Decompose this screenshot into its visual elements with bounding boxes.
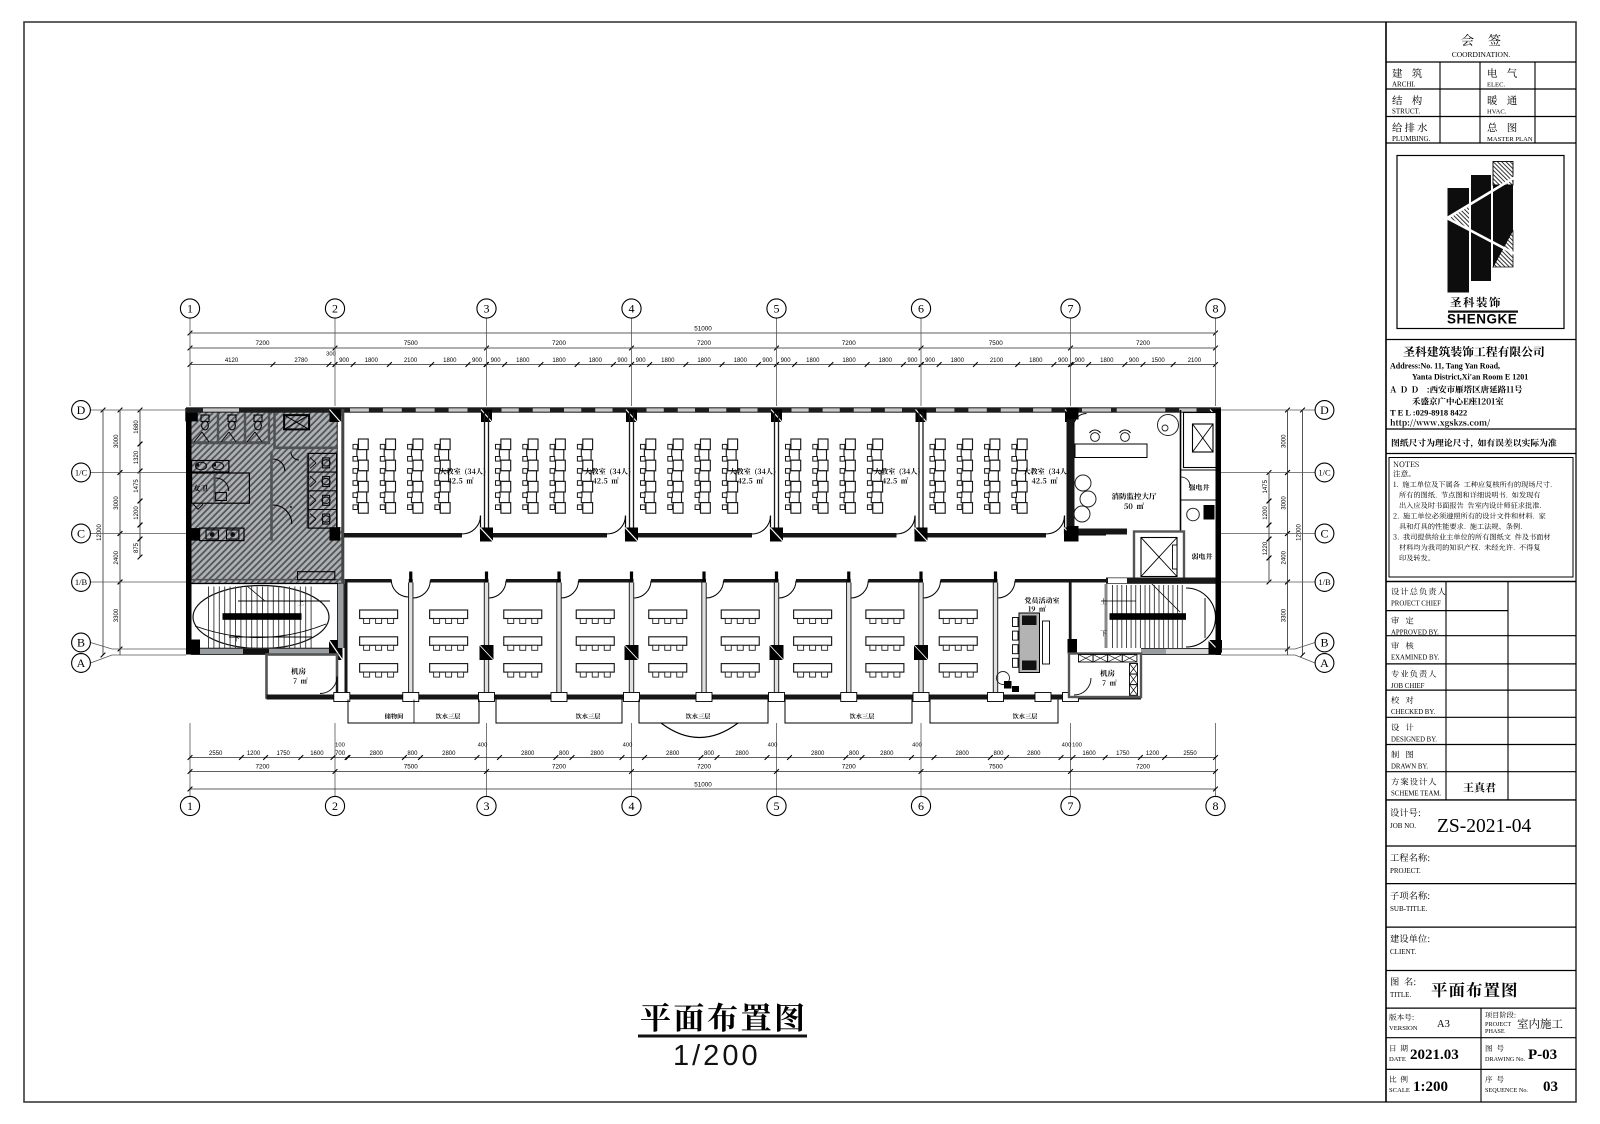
svg-text:3000: 3000 bbox=[114, 434, 120, 448]
svg-text:CHECKED BY.: CHECKED BY. bbox=[1391, 709, 1435, 716]
svg-text:100: 100 bbox=[335, 743, 345, 749]
svg-text:5: 5 bbox=[774, 302, 780, 316]
svg-text:SUB-TITLE.: SUB-TITLE. bbox=[1390, 905, 1427, 913]
svg-text:C: C bbox=[77, 527, 85, 541]
svg-text:3300: 3300 bbox=[1282, 608, 1288, 622]
svg-text:900: 900 bbox=[1075, 358, 1086, 364]
svg-text:2800: 2800 bbox=[1027, 751, 1041, 757]
svg-text:4: 4 bbox=[629, 302, 635, 316]
svg-text:7200: 7200 bbox=[697, 340, 712, 347]
svg-text:PROJECT: PROJECT bbox=[1485, 1021, 1511, 1028]
svg-text:DESIGNED BY.: DESIGNED BY. bbox=[1391, 736, 1437, 743]
svg-text:400: 400 bbox=[912, 743, 922, 749]
svg-text:APPROVED BY.: APPROVED BY. bbox=[1391, 630, 1439, 637]
svg-text:2100: 2100 bbox=[990, 358, 1004, 364]
svg-text:1475: 1475 bbox=[134, 479, 140, 493]
svg-text:300: 300 bbox=[326, 352, 336, 358]
svg-text:2800: 2800 bbox=[590, 751, 604, 757]
svg-text:TITLE.: TITLE. bbox=[1390, 991, 1411, 999]
svg-text:MASTER PLAN: MASTER PLAN bbox=[1487, 136, 1533, 143]
svg-text:1800: 1800 bbox=[842, 358, 856, 364]
svg-text:1320: 1320 bbox=[134, 450, 140, 464]
svg-text:700: 700 bbox=[335, 751, 346, 757]
svg-text:1800: 1800 bbox=[879, 358, 893, 364]
svg-text:2100: 2100 bbox=[404, 358, 418, 364]
svg-text:3000: 3000 bbox=[1282, 496, 1288, 510]
svg-text:2400: 2400 bbox=[114, 550, 120, 564]
svg-text:3300: 3300 bbox=[114, 608, 120, 622]
svg-text:2780: 2780 bbox=[294, 358, 308, 364]
svg-text:400: 400 bbox=[623, 743, 633, 749]
svg-text:B: B bbox=[1320, 636, 1328, 650]
svg-text:1: 1 bbox=[187, 302, 193, 316]
svg-text:7200: 7200 bbox=[842, 340, 857, 347]
svg-text:SHENGKE: SHENGKE bbox=[1447, 312, 1517, 327]
svg-text:1:200: 1:200 bbox=[1413, 1079, 1448, 1095]
svg-text:900: 900 bbox=[491, 358, 502, 364]
svg-text:PLUMBING.: PLUMBING. bbox=[1392, 135, 1431, 143]
svg-text:2800: 2800 bbox=[956, 751, 970, 757]
svg-text:4: 4 bbox=[629, 799, 635, 813]
svg-text:400: 400 bbox=[768, 743, 778, 749]
svg-text:CLIENT.: CLIENT. bbox=[1390, 948, 1416, 956]
svg-text:STRUCT.: STRUCT. bbox=[1392, 108, 1420, 116]
svg-text:1600: 1600 bbox=[310, 751, 324, 757]
svg-text:1/C: 1/C bbox=[1318, 468, 1331, 478]
svg-text:2800: 2800 bbox=[735, 751, 749, 757]
svg-text:1475: 1475 bbox=[1263, 479, 1269, 493]
svg-text:2800: 2800 bbox=[370, 751, 384, 757]
svg-text:1200: 1200 bbox=[134, 506, 140, 520]
svg-text:1750: 1750 bbox=[1116, 751, 1130, 757]
svg-text:3: 3 bbox=[484, 799, 490, 813]
svg-text:1600: 1600 bbox=[1082, 751, 1096, 757]
svg-text:1200: 1200 bbox=[1146, 751, 1160, 757]
svg-text:Yanta District,Xi'an Room E 12: Yanta District,Xi'an Room E 1201 bbox=[1412, 373, 1528, 382]
svg-text:1680: 1680 bbox=[134, 420, 140, 434]
svg-text:DATE: DATE bbox=[1389, 1056, 1406, 1063]
svg-text:HVAC.: HVAC. bbox=[1487, 109, 1507, 116]
svg-text:400: 400 bbox=[1062, 743, 1072, 749]
svg-text:2100: 2100 bbox=[1188, 358, 1202, 364]
svg-text:1800: 1800 bbox=[552, 358, 566, 364]
svg-text:2550: 2550 bbox=[1183, 751, 1197, 757]
svg-text:1750: 1750 bbox=[277, 751, 291, 757]
svg-text:PROJECT.: PROJECT. bbox=[1390, 867, 1421, 875]
svg-text:COORDINATION.: COORDINATION. bbox=[1452, 50, 1511, 59]
svg-text:B: B bbox=[77, 636, 85, 650]
svg-text:1: 1 bbox=[187, 799, 193, 813]
svg-text:ELEC.: ELEC. bbox=[1487, 82, 1505, 89]
svg-text:800: 800 bbox=[704, 751, 715, 757]
svg-text:1800: 1800 bbox=[1100, 358, 1114, 364]
svg-text:1800: 1800 bbox=[734, 358, 748, 364]
svg-text:7200: 7200 bbox=[552, 340, 567, 347]
svg-text:1800: 1800 bbox=[661, 358, 675, 364]
svg-text:51000: 51000 bbox=[694, 326, 712, 333]
svg-text:7500: 7500 bbox=[989, 764, 1004, 771]
svg-text:8: 8 bbox=[1213, 799, 1219, 813]
svg-text:JOB NO.: JOB NO. bbox=[1390, 822, 1416, 830]
svg-text:2800: 2800 bbox=[442, 751, 456, 757]
svg-text:1500: 1500 bbox=[1151, 358, 1165, 364]
svg-text:8: 8 bbox=[1213, 302, 1219, 316]
svg-text:1220: 1220 bbox=[1263, 541, 1269, 555]
svg-text:900: 900 bbox=[636, 358, 647, 364]
svg-text:JOB CHIEF: JOB CHIEF bbox=[1391, 683, 1425, 690]
svg-text:D: D bbox=[77, 403, 86, 417]
svg-text:2800: 2800 bbox=[666, 751, 680, 757]
svg-text:7500: 7500 bbox=[989, 340, 1004, 347]
svg-text:1800: 1800 bbox=[1029, 358, 1043, 364]
svg-text:ARCHI.: ARCHI. bbox=[1392, 81, 1416, 89]
svg-text:7500: 7500 bbox=[404, 340, 419, 347]
svg-text:7200: 7200 bbox=[1136, 340, 1151, 347]
svg-text:D: D bbox=[1320, 403, 1329, 417]
svg-text:DRAWN BY.: DRAWN BY. bbox=[1391, 764, 1428, 771]
svg-text:03: 03 bbox=[1543, 1079, 1558, 1095]
svg-text:900: 900 bbox=[339, 358, 350, 364]
svg-text:SCALE: SCALE bbox=[1389, 1087, 1410, 1094]
svg-text:PHASE: PHASE bbox=[1485, 1028, 1505, 1035]
svg-text:1800: 1800 bbox=[806, 358, 820, 364]
svg-text:5: 5 bbox=[774, 799, 780, 813]
svg-text:1200: 1200 bbox=[1263, 506, 1269, 520]
svg-text:7: 7 bbox=[1068, 302, 1074, 316]
svg-text:Address:No. 11, Tang Yan Road,: Address:No. 11, Tang Yan Road, bbox=[1390, 362, 1500, 371]
svg-text:7200: 7200 bbox=[552, 764, 567, 771]
svg-text:100: 100 bbox=[1072, 743, 1082, 749]
svg-text:900: 900 bbox=[472, 358, 483, 364]
svg-text:DRAWING No.: DRAWING No. bbox=[1485, 1056, 1526, 1063]
svg-text:2400: 2400 bbox=[1282, 550, 1288, 564]
svg-text:7200: 7200 bbox=[842, 764, 857, 771]
svg-text:1/B: 1/B bbox=[1318, 577, 1331, 587]
svg-text:P-03: P-03 bbox=[1528, 1047, 1557, 1063]
svg-text:800: 800 bbox=[559, 751, 570, 757]
svg-text:7200: 7200 bbox=[255, 764, 270, 771]
svg-text:900: 900 bbox=[1129, 358, 1140, 364]
svg-text:400: 400 bbox=[478, 743, 488, 749]
svg-text:900: 900 bbox=[1058, 358, 1069, 364]
svg-text:900: 900 bbox=[617, 358, 628, 364]
svg-text:2800: 2800 bbox=[811, 751, 825, 757]
svg-text:2550: 2550 bbox=[209, 751, 223, 757]
svg-text:1/C: 1/C bbox=[75, 468, 88, 478]
svg-text:ZS-2021-04: ZS-2021-04 bbox=[1437, 816, 1531, 837]
svg-text:A: A bbox=[77, 656, 86, 670]
svg-text:A3: A3 bbox=[1437, 1019, 1450, 1030]
svg-text:SCHEME TEAM.: SCHEME TEAM. bbox=[1391, 791, 1441, 798]
svg-text:PROJECT CHIEF: PROJECT CHIEF bbox=[1391, 601, 1441, 608]
svg-text:1800: 1800 bbox=[443, 358, 457, 364]
svg-text:2800: 2800 bbox=[880, 751, 894, 757]
svg-text:800: 800 bbox=[993, 751, 1004, 757]
svg-text:2: 2 bbox=[332, 799, 338, 813]
svg-text:VERSION: VERSION bbox=[1389, 1025, 1418, 1032]
svg-text:2: 2 bbox=[332, 302, 338, 316]
svg-text:1/200: 1/200 bbox=[673, 1040, 761, 1072]
svg-text:A: A bbox=[1320, 656, 1329, 670]
svg-text:1800: 1800 bbox=[589, 358, 603, 364]
svg-text:900: 900 bbox=[762, 358, 773, 364]
svg-text:7200: 7200 bbox=[1136, 764, 1151, 771]
svg-text:800: 800 bbox=[407, 751, 418, 757]
svg-text:1800: 1800 bbox=[516, 358, 530, 364]
svg-text:SEQUENCE No.: SEQUENCE No. bbox=[1485, 1087, 1528, 1094]
svg-text:6: 6 bbox=[918, 302, 924, 316]
svg-text:1800: 1800 bbox=[365, 358, 379, 364]
svg-text:EXAMINED BY.: EXAMINED BY. bbox=[1391, 655, 1440, 662]
svg-text:4120: 4120 bbox=[225, 358, 239, 364]
svg-text:900: 900 bbox=[925, 358, 936, 364]
svg-text:800: 800 bbox=[849, 751, 860, 757]
svg-text:3000: 3000 bbox=[114, 496, 120, 510]
svg-text:51000: 51000 bbox=[694, 782, 712, 789]
svg-text:6: 6 bbox=[918, 799, 924, 813]
svg-text:3000: 3000 bbox=[1282, 434, 1288, 448]
svg-text:7500: 7500 bbox=[404, 764, 419, 771]
svg-text:7200: 7200 bbox=[255, 340, 270, 347]
svg-text:875: 875 bbox=[134, 542, 140, 553]
svg-text:7: 7 bbox=[1068, 799, 1074, 813]
svg-text:2800: 2800 bbox=[521, 751, 535, 757]
svg-text:1800: 1800 bbox=[697, 358, 711, 364]
svg-text:T E L :029-8918 8422: T E L :029-8918 8422 bbox=[1390, 408, 1467, 418]
svg-text:C: C bbox=[1320, 527, 1328, 541]
svg-text:3: 3 bbox=[484, 302, 490, 316]
svg-text:900: 900 bbox=[781, 358, 792, 364]
svg-text:12000: 12000 bbox=[97, 523, 103, 540]
svg-text:12000: 12000 bbox=[1297, 523, 1303, 540]
svg-text:900: 900 bbox=[907, 358, 918, 364]
svg-text:1200: 1200 bbox=[247, 751, 261, 757]
svg-text:7200: 7200 bbox=[697, 764, 712, 771]
svg-text:1/B: 1/B bbox=[75, 577, 88, 587]
svg-text:1800: 1800 bbox=[951, 358, 965, 364]
svg-text:2021.03: 2021.03 bbox=[1410, 1047, 1459, 1063]
